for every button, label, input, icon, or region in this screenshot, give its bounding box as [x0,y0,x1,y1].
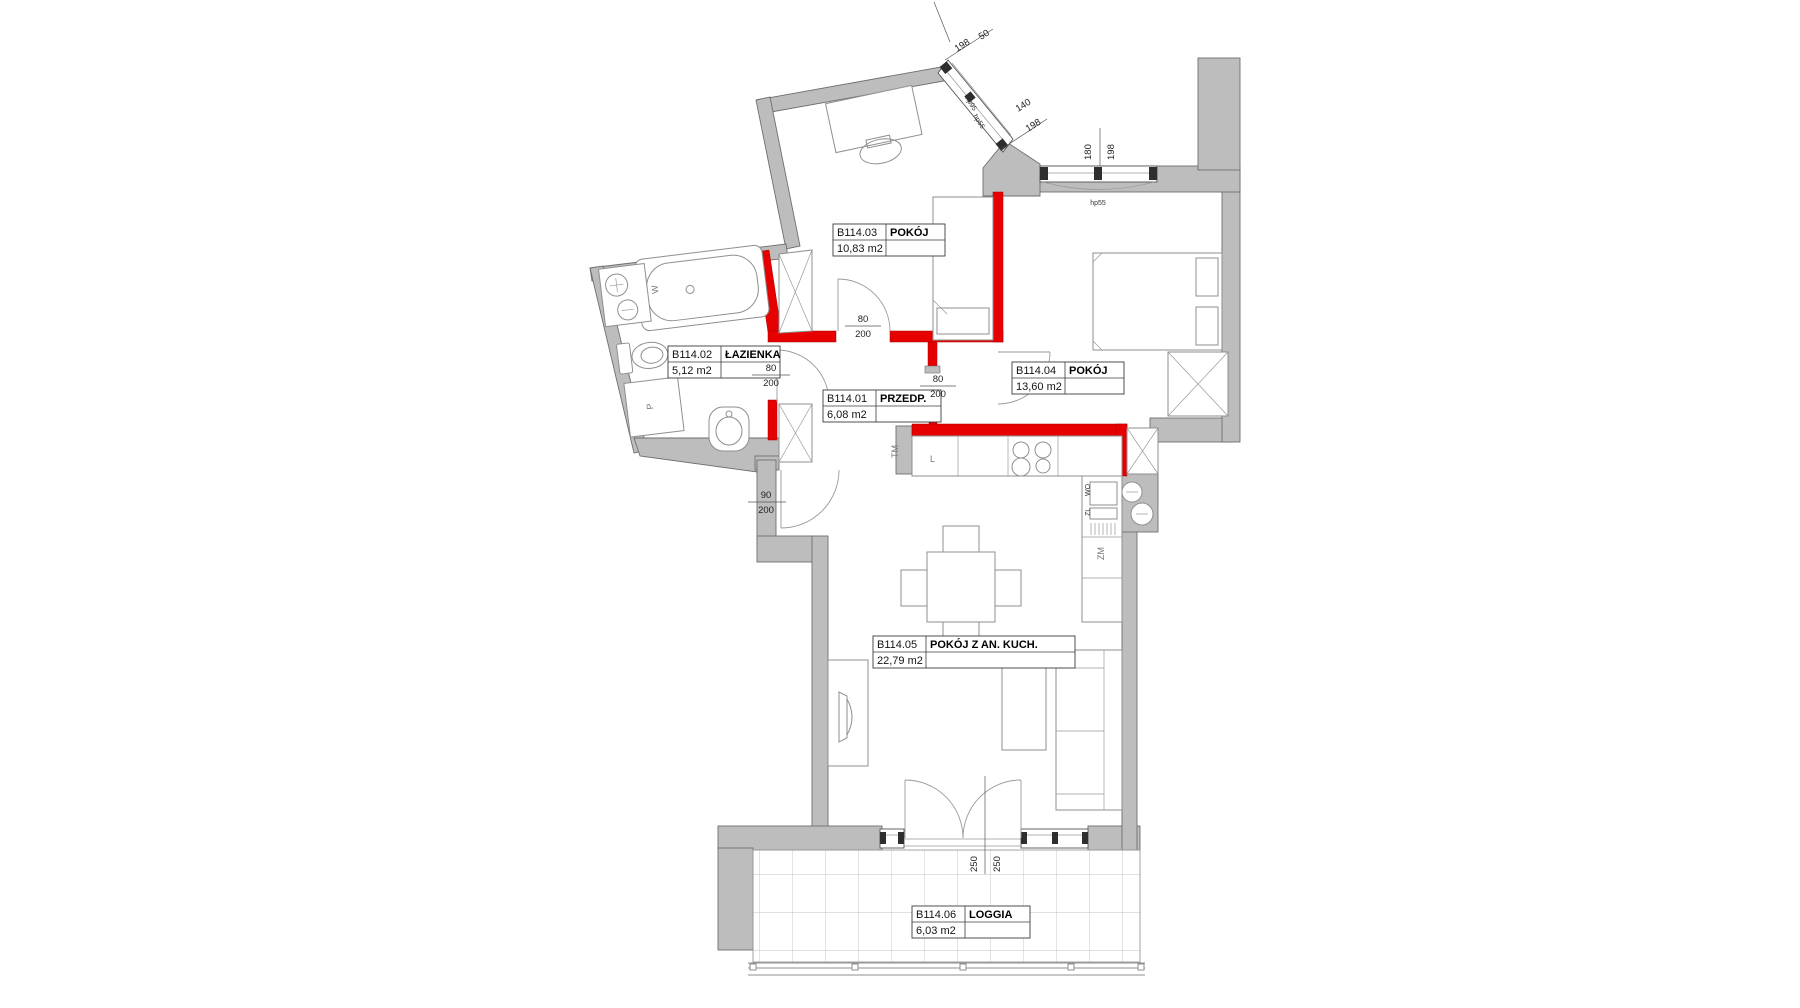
dim-height: 200 [763,378,779,389]
rail-post-5 [1138,964,1144,970]
room-area: 10,83 m2 [837,243,883,255]
wall-liv-left [812,536,828,850]
door-bath-arc [777,350,829,402]
chair-top [943,526,979,552]
sofa [1056,650,1122,810]
room-label-b02: B114.02 ŁAZIENKA 5,12 m2 [668,346,781,378]
window-b04-jamb-mid [1094,167,1102,180]
room-name: ŁAZIENKA [725,349,781,361]
room-code: B114.04 [1016,365,1056,377]
room-area: 22,79 m2 [877,655,923,667]
room-name: POKÓJ [890,226,929,239]
dim-leaf-1: 250 [969,856,980,872]
dim-height: 200 [758,505,774,516]
room-name: PRZEDP. [880,393,926,405]
dim-window-width: 180 [1083,144,1094,160]
wall-bottom-left [718,826,882,850]
red-wall-kitchen [912,424,1127,436]
sink-label-top: WO [1085,483,1092,496]
room-area: 13,60 m2 [1016,381,1062,393]
dim-width: 80 [933,374,944,385]
bathtub-label: W [649,284,660,294]
dim-seg2-width: 140 [1014,97,1033,115]
rail-post-1 [750,964,756,970]
dim-width: 90 [761,490,772,501]
room-code: B114.02 [672,349,712,361]
red-wall-b03-bottom-left [768,331,836,342]
dim-leaf-2: 250 [992,856,1003,872]
room-area: 6,03 m2 [916,925,956,937]
room-area: 6,08 m2 [827,409,867,421]
bathtub: W [634,244,770,331]
dim-seg1-width: 50 [977,28,992,43]
bed-double [1093,253,1222,350]
dim-door-b03: 80 200 [845,314,881,340]
floor-plan-page: W P [0,0,1800,1008]
wall-corner-block [983,141,1040,196]
window-strip-left-cap2 [898,832,904,844]
floor-plan-svg: W P [0,0,1800,1008]
toilet [616,338,669,374]
dim-opening-bottom: 198 [1024,117,1043,135]
dim-width: 80 [766,363,777,374]
room-name: POKÓJ Z AN. KUCH. [930,638,1038,651]
chair-left [901,570,927,606]
wall-liv-jog [757,536,815,562]
room-name: POKÓJ [1069,364,1108,377]
dim-width: 80 [858,314,869,325]
wall-b03-left [756,97,800,249]
dim-height: 200 [930,389,946,400]
dishwasher-label: ZM [1096,547,1106,560]
room-code: B114.05 [877,639,917,651]
washing-machine-label: P [645,403,656,410]
window-strip-right-cap1 [1021,832,1027,844]
dim-window-opening: 198 [1106,144,1117,160]
red-wall-stub-cap [925,366,940,373]
wall-b04-bottom [1150,418,1232,442]
dim-window-sill: hp55 [1090,200,1106,207]
wall-liv-left-upper [757,460,776,546]
room-area: 5,12 m2 [672,365,712,377]
wall-liv-right [1122,528,1137,850]
chair-right [995,570,1021,606]
room-code: B114.06 [916,909,956,921]
room-label-b03: B114.03 POKÓJ 10,83 m2 [833,224,945,256]
meter-panel-label: TM [890,445,900,458]
red-wall-b03-right [993,192,1003,342]
b03-furniture [826,85,993,340]
window-strip-left-cap1 [880,832,886,844]
bed-single [933,197,993,340]
red-wall-stub-mid [928,342,937,366]
washing-machine: P [624,377,684,437]
dining-table [927,552,995,622]
room-label-b04: B114.04 POKÓJ 13,60 m2 [1012,362,1124,394]
coffee-table [1002,662,1046,750]
meter-shaft-bath [599,264,652,327]
dim-opening-top: 198 [953,37,972,55]
window-strip-right-cap2 [1052,832,1058,844]
fridge-label: L [930,454,935,464]
balcony-door-left-arc [905,780,963,838]
room-label-b06: B114.06 LOGGIA 6,03 m2 [912,906,1030,938]
room-label-b01: B114.01 PRZEDP. 6,08 m2 [823,390,941,422]
wall-loggia-left [718,848,753,950]
window-strip-right-cap3 [1082,832,1088,844]
dim-height: 200 [855,329,871,340]
tv-cabinet [828,660,868,766]
room-code: B114.01 [827,393,867,405]
rail-post-3 [960,964,966,970]
room-code: B114.03 [837,227,877,239]
rail-post-2 [852,964,858,970]
room-name: LOGGIA [969,909,1012,921]
sink-label-bottom: ZL [1085,508,1092,516]
door-entry-arc [781,470,839,528]
wall-top-right-notch [1198,58,1240,170]
kitchen-counter-top [912,436,1122,476]
room-label-b05: B114.05 POKÓJ Z AN. KUCH. 22,79 m2 [873,636,1075,668]
window-b04-jamb-right [1149,167,1157,180]
b04-furniture [1093,253,1222,350]
bath-sink [709,407,749,451]
rail-post-4 [1068,964,1074,970]
window-b04-jamb-left [1040,167,1048,180]
red-wall-hall-jamb [768,400,777,440]
balcony-door-right-arc [963,780,1021,838]
